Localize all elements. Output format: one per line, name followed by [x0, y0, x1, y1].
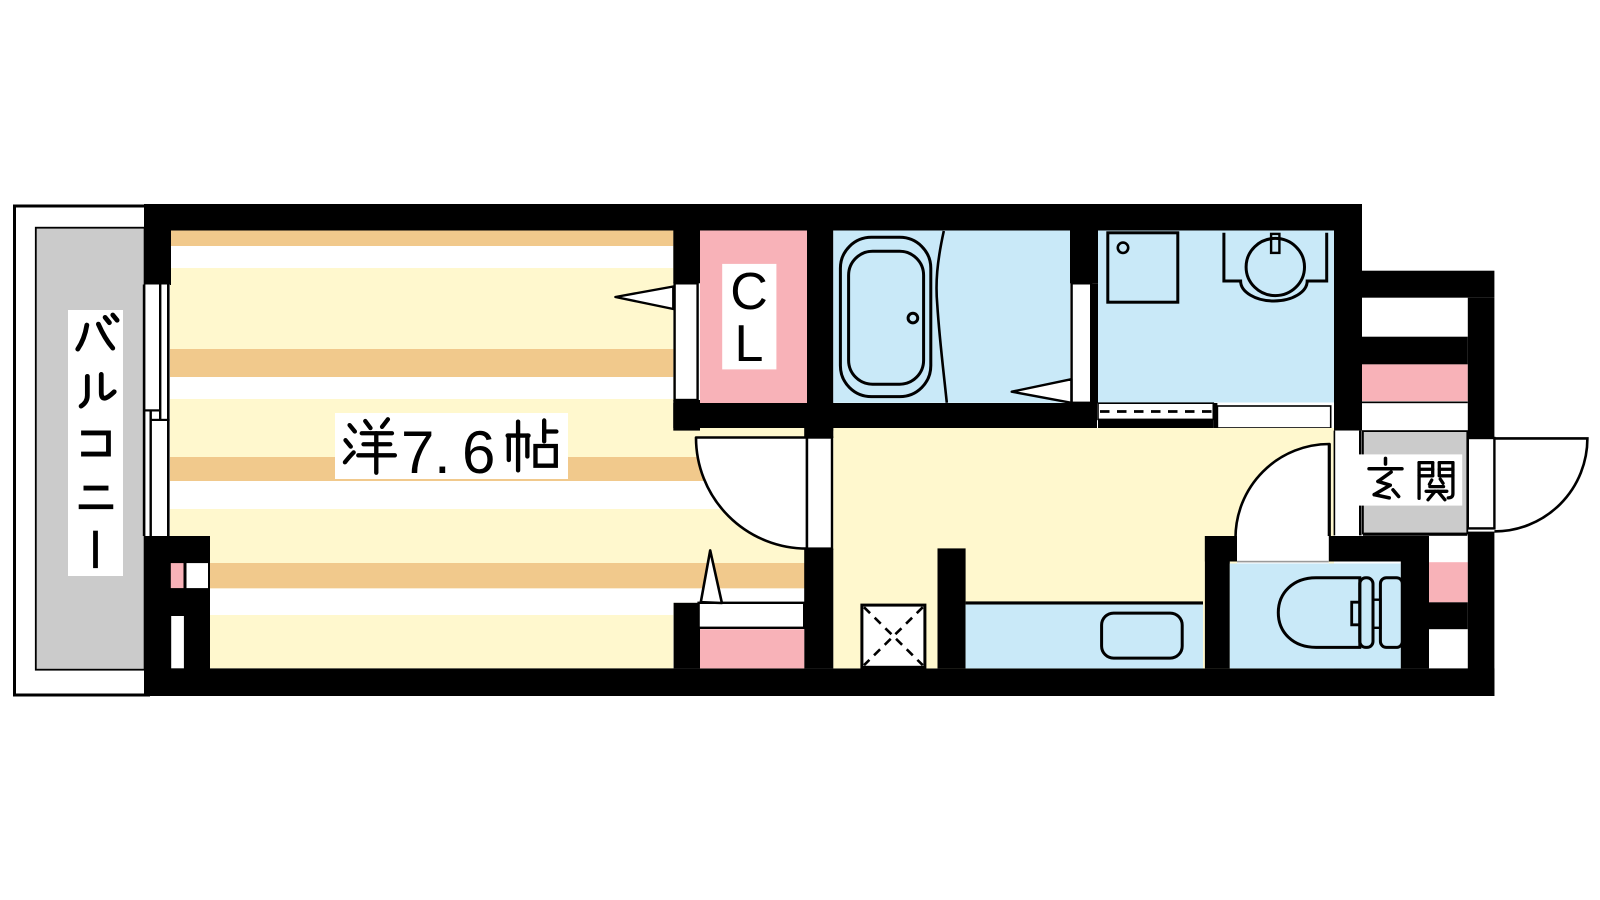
svg-text:L: L	[735, 315, 764, 373]
svg-text:7: 7	[401, 419, 434, 486]
svg-text:.: .	[434, 419, 451, 486]
svg-text:6: 6	[462, 419, 495, 486]
svg-text:C: C	[730, 263, 768, 321]
